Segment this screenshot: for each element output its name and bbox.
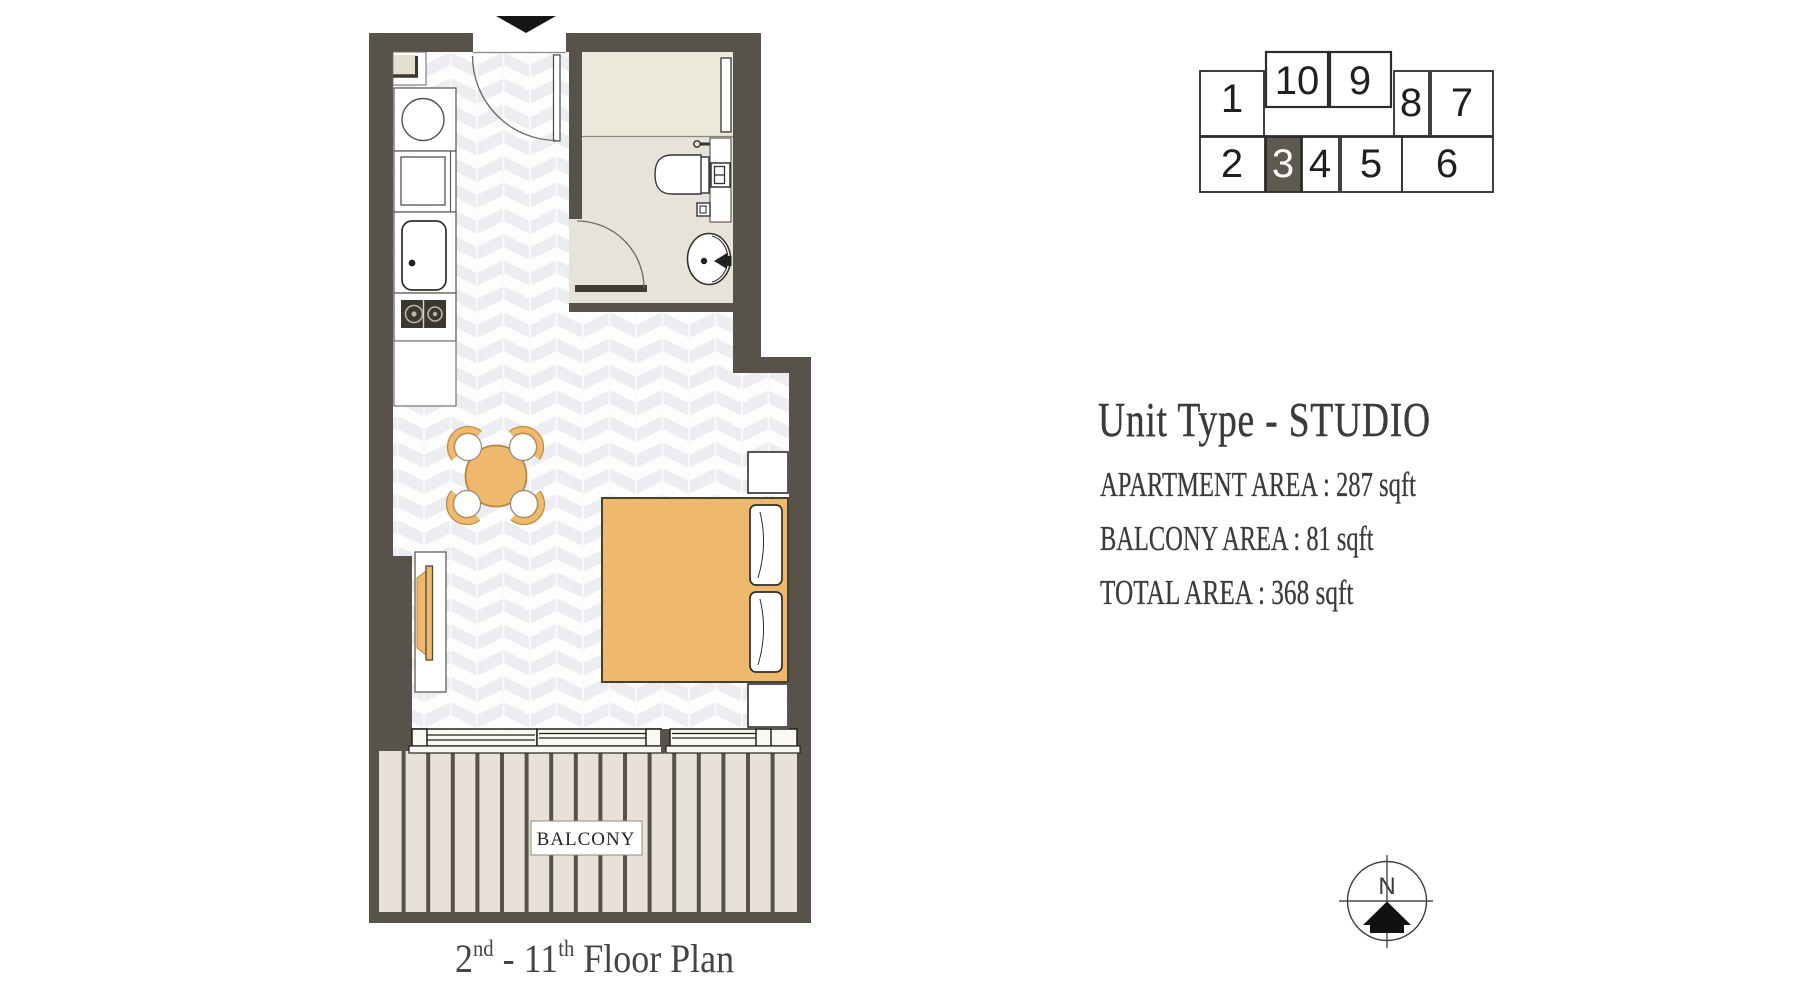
svg-text:N: N — [1378, 873, 1395, 900]
svg-text:3: 3 — [1272, 142, 1294, 186]
svg-text:9: 9 — [1349, 59, 1371, 103]
svg-text:8: 8 — [1400, 81, 1422, 125]
svg-text:BALCONY: BALCONY — [537, 829, 636, 850]
svg-text:BALCONY AREA : 81 sqft: BALCONY AREA : 81 sqft — [1100, 519, 1374, 558]
svg-text:6: 6 — [1436, 142, 1458, 186]
svg-text:10: 10 — [1275, 59, 1320, 103]
svg-text:2nd - 11th Floor Plan: 2nd - 11th Floor Plan — [455, 936, 734, 981]
svg-text:7: 7 — [1451, 81, 1473, 125]
svg-text:Unit Type - STUDIO: Unit Type - STUDIO — [1098, 393, 1431, 447]
svg-text:5: 5 — [1360, 142, 1382, 186]
svg-text:4: 4 — [1309, 142, 1331, 186]
svg-text:2: 2 — [1221, 142, 1243, 186]
svg-text:1: 1 — [1221, 77, 1243, 121]
svg-text:APARTMENT AREA : 287 sqft: APARTMENT AREA : 287 sqft — [1100, 465, 1416, 504]
svg-text:TOTAL AREA : 368 sqft: TOTAL AREA : 368 sqft — [1100, 573, 1354, 612]
